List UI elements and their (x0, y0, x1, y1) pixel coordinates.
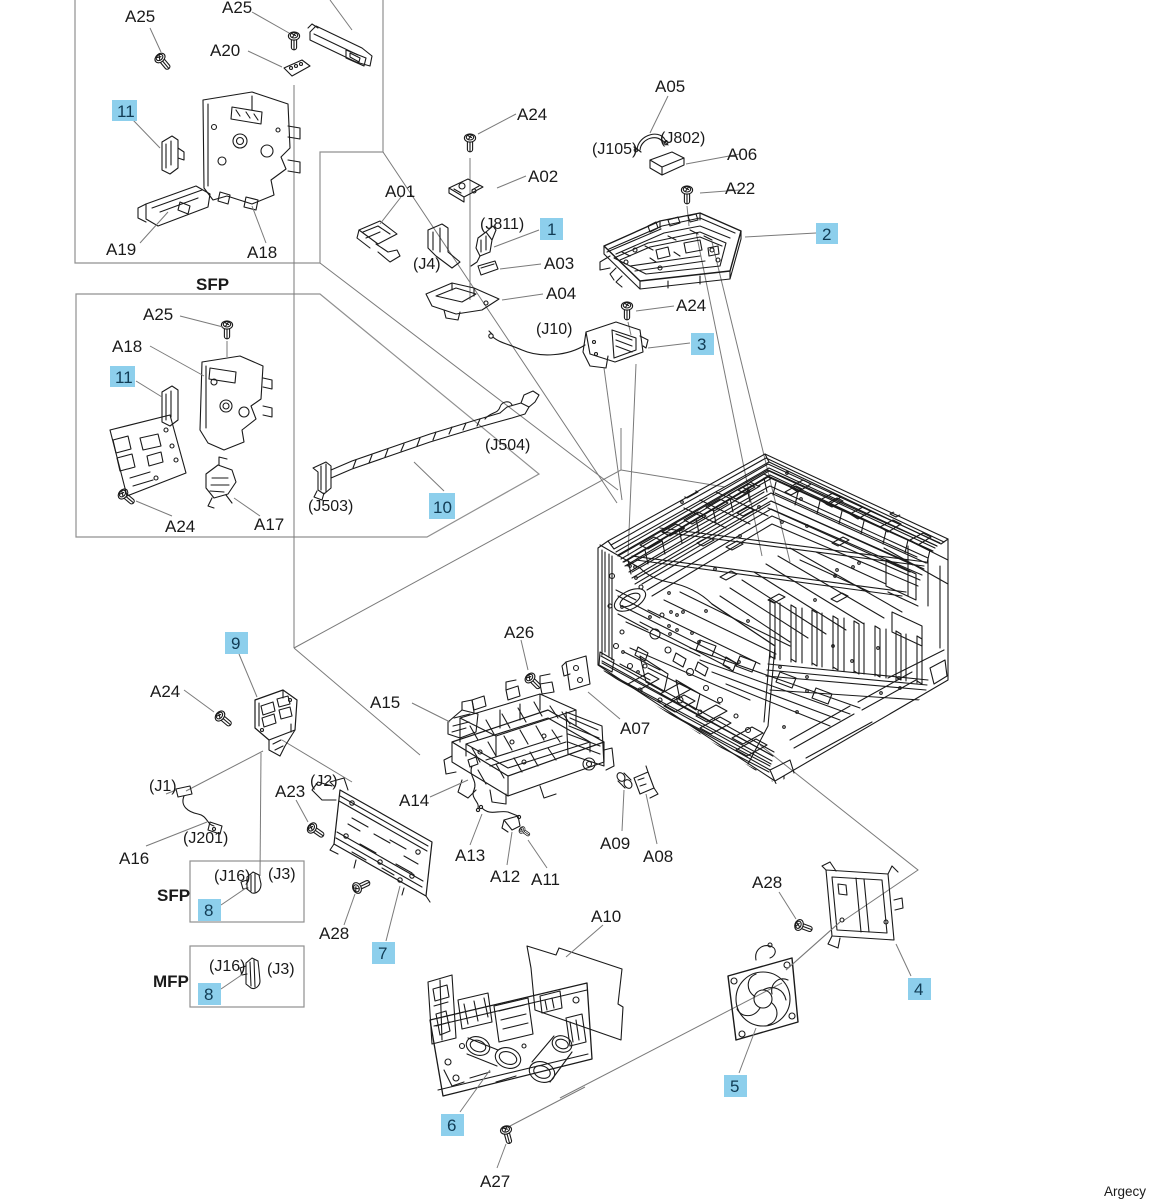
svg-text:1: 1 (547, 220, 556, 239)
svg-text:A26: A26 (504, 623, 534, 642)
svg-text:A11: A11 (531, 870, 560, 889)
svg-text:(J1): (J1) (149, 778, 177, 795)
svg-text:A05: A05 (655, 77, 685, 96)
svg-text:A25: A25 (143, 305, 173, 324)
svg-text:(J504): (J504) (485, 437, 530, 454)
svg-text:6: 6 (447, 1116, 456, 1135)
svg-text:(J16): (J16) (209, 958, 245, 975)
svg-text:A17: A17 (254, 515, 284, 534)
svg-text:8: 8 (204, 901, 213, 920)
svg-text:A13: A13 (455, 846, 485, 865)
svg-text:A04: A04 (546, 284, 576, 303)
svg-text:A25: A25 (222, 0, 252, 17)
svg-text:10: 10 (433, 498, 452, 517)
svg-text:9: 9 (231, 634, 240, 653)
svg-text:(J4): (J4) (413, 256, 441, 273)
svg-text:A20: A20 (210, 41, 240, 60)
svg-text:(J3): (J3) (267, 961, 295, 978)
svg-text:A08: A08 (643, 847, 673, 866)
svg-text:(J503): (J503) (308, 498, 353, 515)
svg-text:A06: A06 (727, 145, 757, 164)
svg-text:A25: A25 (125, 7, 155, 26)
svg-text:A01: A01 (385, 182, 415, 201)
svg-text:(J2): (J2) (310, 773, 338, 790)
svg-text:A09: A09 (600, 834, 630, 853)
svg-text:5: 5 (730, 1077, 739, 1096)
svg-text:(J811): (J811) (480, 216, 524, 233)
svg-text:A24: A24 (517, 105, 547, 124)
svg-text:SFP: SFP (157, 886, 190, 905)
svg-text:(J3): (J3) (268, 866, 296, 883)
svg-text:A19: A19 (106, 240, 136, 259)
svg-text:A24: A24 (165, 517, 195, 536)
svg-text:A28: A28 (319, 924, 349, 943)
svg-text:A16: A16 (119, 849, 149, 868)
svg-text:11: 11 (117, 102, 135, 121)
svg-text:A23: A23 (275, 782, 305, 801)
svg-text:A07: A07 (620, 719, 650, 738)
svg-text:A12: A12 (490, 867, 520, 886)
svg-text:7: 7 (378, 944, 387, 963)
svg-text:SFP: SFP (196, 275, 229, 294)
svg-text:Argecy: Argecy (1104, 1184, 1146, 1199)
svg-text:MFP: MFP (153, 972, 189, 991)
svg-text:4: 4 (914, 980, 923, 999)
svg-text:(J16): (J16) (214, 868, 250, 885)
svg-text:A02: A02 (528, 167, 558, 186)
svg-text:A18: A18 (112, 337, 142, 356)
svg-text:A03: A03 (544, 254, 574, 273)
svg-text:(J802): (J802) (660, 130, 705, 147)
svg-text:(J10): (J10) (536, 321, 572, 338)
svg-text:A24: A24 (676, 296, 706, 315)
svg-text:A10: A10 (591, 907, 621, 926)
svg-text:A18: A18 (247, 243, 277, 262)
svg-text:A24: A24 (150, 682, 180, 701)
svg-text:3: 3 (697, 335, 706, 354)
svg-text:2: 2 (822, 225, 831, 244)
svg-text:(J201): (J201) (183, 830, 228, 847)
svg-text:A14: A14 (399, 791, 429, 810)
svg-text:(J105): (J105) (592, 141, 637, 158)
svg-text:A15: A15 (370, 693, 400, 712)
svg-text:A27: A27 (480, 1172, 510, 1191)
svg-text:A28: A28 (752, 873, 782, 892)
svg-text:8: 8 (204, 985, 213, 1004)
svg-text:A22: A22 (725, 179, 755, 198)
svg-text:11: 11 (115, 368, 133, 387)
